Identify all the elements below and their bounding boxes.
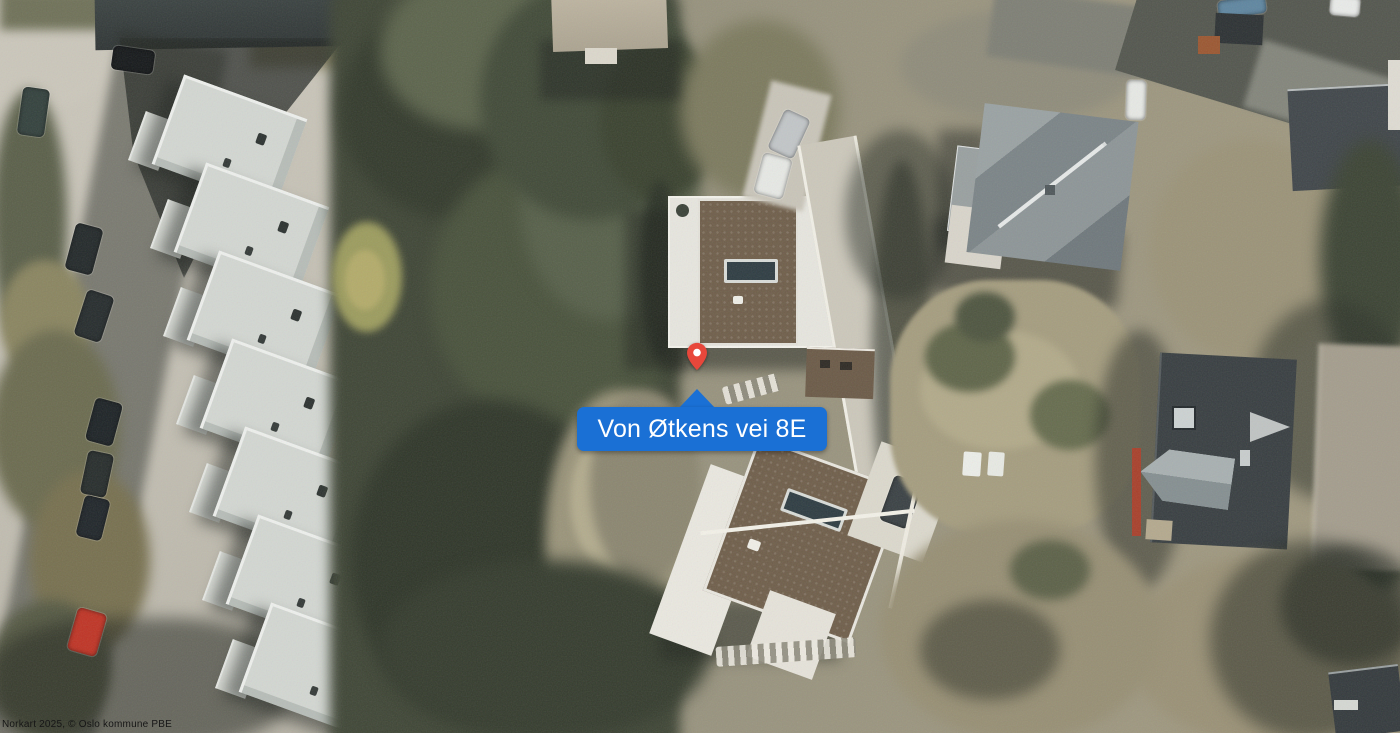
wall [1388, 60, 1400, 130]
roof-window [1240, 450, 1250, 466]
garage-roof [805, 347, 875, 399]
stairs [722, 373, 781, 405]
house-deck [585, 48, 617, 64]
driveway [1311, 343, 1400, 571]
rock-shadow [920, 600, 1060, 700]
bush [1010, 540, 1090, 600]
address-label-text: Von Øtkens vei 8E [597, 415, 806, 444]
skylight [724, 259, 778, 283]
garden-table [962, 451, 982, 476]
roof-window [1172, 406, 1196, 430]
white-van [1125, 80, 1146, 121]
bush [955, 292, 1015, 342]
house-roof [551, 0, 668, 52]
bush-yellow [345, 250, 385, 310]
garage-window [840, 362, 852, 370]
map-attribution: Norkart 2025, © Oslo kommune PBE [2, 719, 172, 730]
white-van [1329, 0, 1361, 17]
garden-table [987, 451, 1005, 476]
house-deck [1334, 700, 1358, 710]
house-roof [1328, 664, 1400, 733]
map-pin-icon[interactable] [686, 342, 708, 371]
red-scaffold [1132, 448, 1141, 536]
address-label[interactable]: Von Øtkens vei 8E [577, 407, 827, 451]
garage-window [820, 360, 830, 368]
vegetation-patch [0, 0, 110, 30]
roof-vent [733, 296, 743, 304]
tree-overhang [676, 204, 689, 217]
shed [1145, 519, 1172, 541]
shed-roof [1214, 13, 1264, 45]
chimney [1045, 185, 1055, 195]
label-pointer [678, 389, 716, 409]
aerial-map[interactable]: Von Øtkens vei 8E Norkart 2025, © Oslo k… [0, 0, 1400, 733]
container [1198, 36, 1220, 54]
